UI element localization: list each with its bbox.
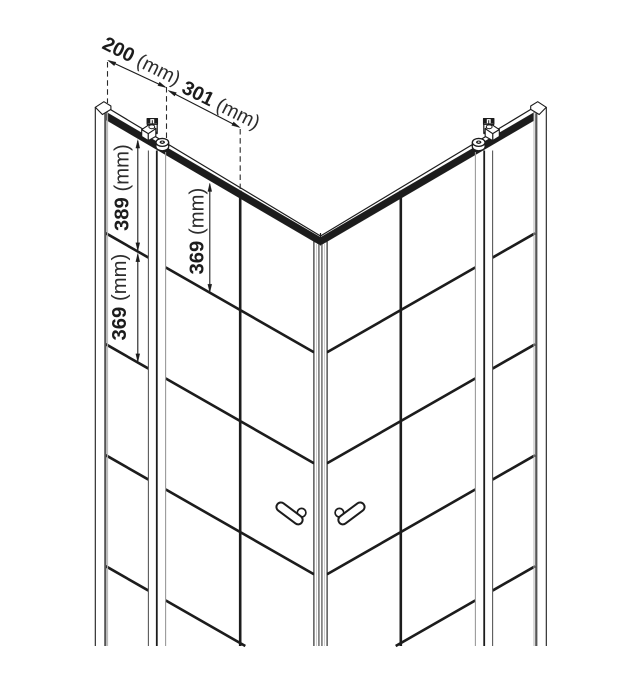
svg-text:301 (mm): 301 (mm) [178,77,263,134]
svg-text:389 (mm): 389 (mm) [112,144,134,231]
svg-text:369 (mm): 369 (mm) [187,188,209,275]
svg-text:369 (mm): 369 (mm) [109,254,131,341]
